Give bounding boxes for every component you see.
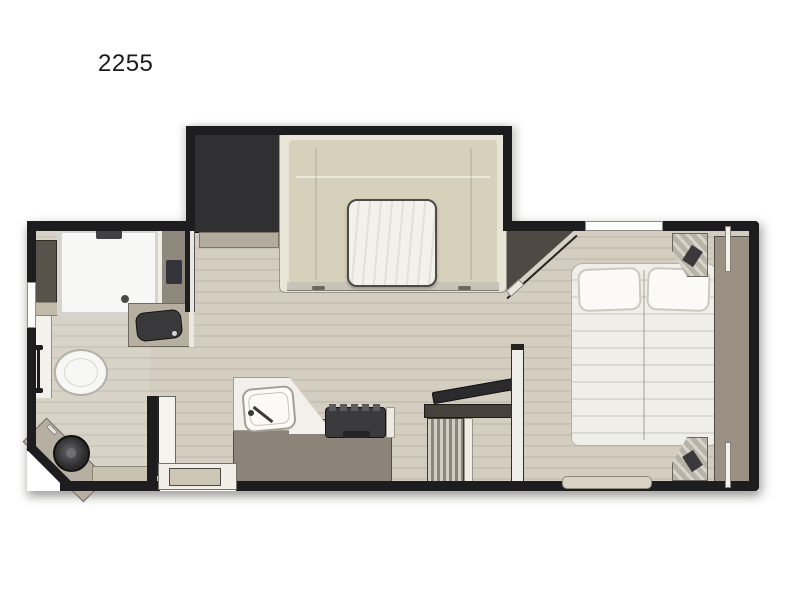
dinette-sofa-right-seam	[470, 148, 472, 280]
kitchen-counter-endcap	[386, 407, 395, 438]
wall-left	[27, 221, 36, 451]
wall-bathroom	[147, 396, 157, 486]
bed-center-seam	[643, 270, 645, 440]
bathroom-linen-shelf	[33, 302, 58, 316]
dinette-sofa-left-seam	[315, 148, 317, 280]
floorplan-model-label: 2255	[98, 50, 153, 78]
bathroom-linen-cabinet	[33, 240, 57, 304]
window-bedroom-bottom	[562, 476, 652, 489]
towel-bar	[37, 347, 40, 389]
toilet-seat	[64, 358, 98, 387]
tv-console	[424, 404, 519, 418]
cooktop-knobs	[329, 404, 383, 411]
louvered-cabinet-side	[464, 418, 473, 482]
corner-sink-drain	[66, 448, 76, 458]
floorplan-canvas: 2255	[0, 0, 800, 600]
dinette-sofa-back-seam	[296, 176, 490, 178]
dinette-table	[347, 199, 437, 287]
bedroom-partition-wall	[511, 348, 524, 482]
wardrobe-divider-bottom	[725, 442, 731, 488]
bathroom-vanity-sink	[135, 309, 184, 343]
wall-right	[749, 221, 759, 491]
refrigerator-base	[199, 232, 279, 248]
wardrobe-divider-top	[725, 226, 731, 272]
wall-slideout-left	[186, 126, 195, 231]
window-bedroom-top	[585, 221, 663, 231]
bedroom-partition-cap	[511, 344, 524, 350]
shower-drain	[121, 295, 129, 303]
kitchen-faucet-base	[248, 410, 254, 416]
refrigerator	[194, 130, 282, 233]
louvered-cabinet	[427, 418, 464, 482]
rear-wardrobe	[714, 236, 750, 482]
dinette-sofa-foot	[458, 286, 471, 290]
entry-step-tray	[169, 468, 221, 486]
oven-handle	[343, 431, 370, 438]
cabinet-side-panel	[190, 231, 195, 311]
wall-slideout-top	[186, 126, 512, 135]
bathroom-cabinet-panel	[166, 260, 182, 284]
wall-top-left	[27, 221, 192, 231]
window-left	[27, 282, 36, 328]
bathroom-tall-cabinet-edge	[158, 227, 162, 312]
wall-slideout-right	[503, 126, 512, 231]
pillow	[577, 267, 641, 312]
dinette-sofa-foot	[312, 286, 325, 290]
bathroom-vanity-faucet	[172, 331, 177, 336]
